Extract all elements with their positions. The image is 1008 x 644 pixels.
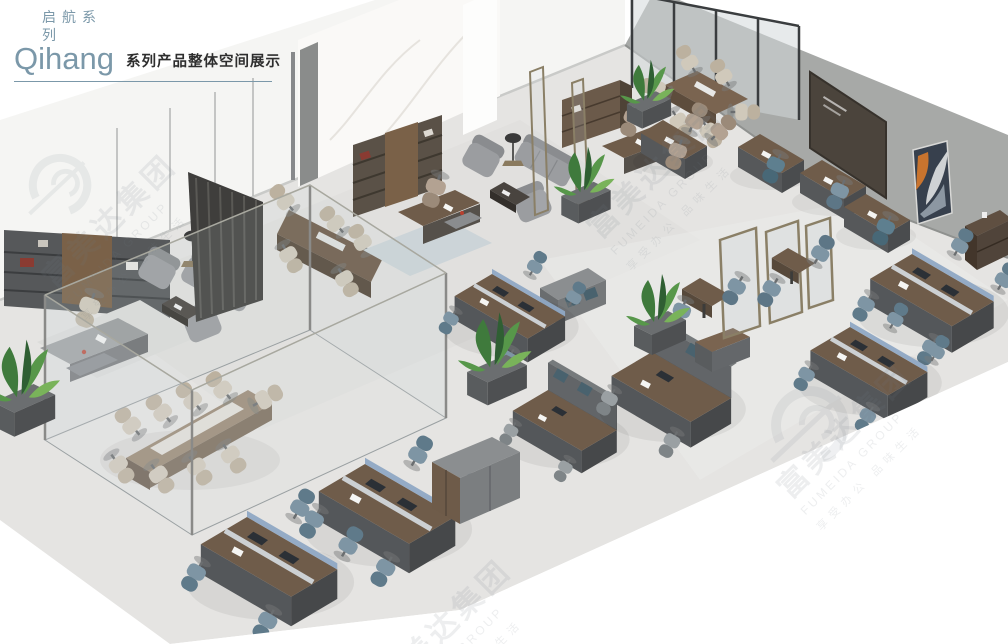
header-divider [14,81,272,82]
page-header: 启航系列 Qihang 系列产品整体空间展示 [14,8,276,82]
catalog-page: 富美达集团 FUMEIDA GROUP 享受办公 品味生活 富美达集团 FUME… [0,0,1008,644]
white-pillar [463,0,497,135]
leaning-artwork [913,141,952,224]
page-subtitle: 系列产品整体空间展示 [126,50,281,71]
wall-trim-dark [300,42,318,186]
series-name-en: Qihang [14,44,114,73]
office-showroom-render: 富美达集团 FUMEIDA GROUP 享受办公 品味生活 富美达集团 FUME… [0,0,1008,644]
series-name-cn: 启航系列 [14,8,114,44]
